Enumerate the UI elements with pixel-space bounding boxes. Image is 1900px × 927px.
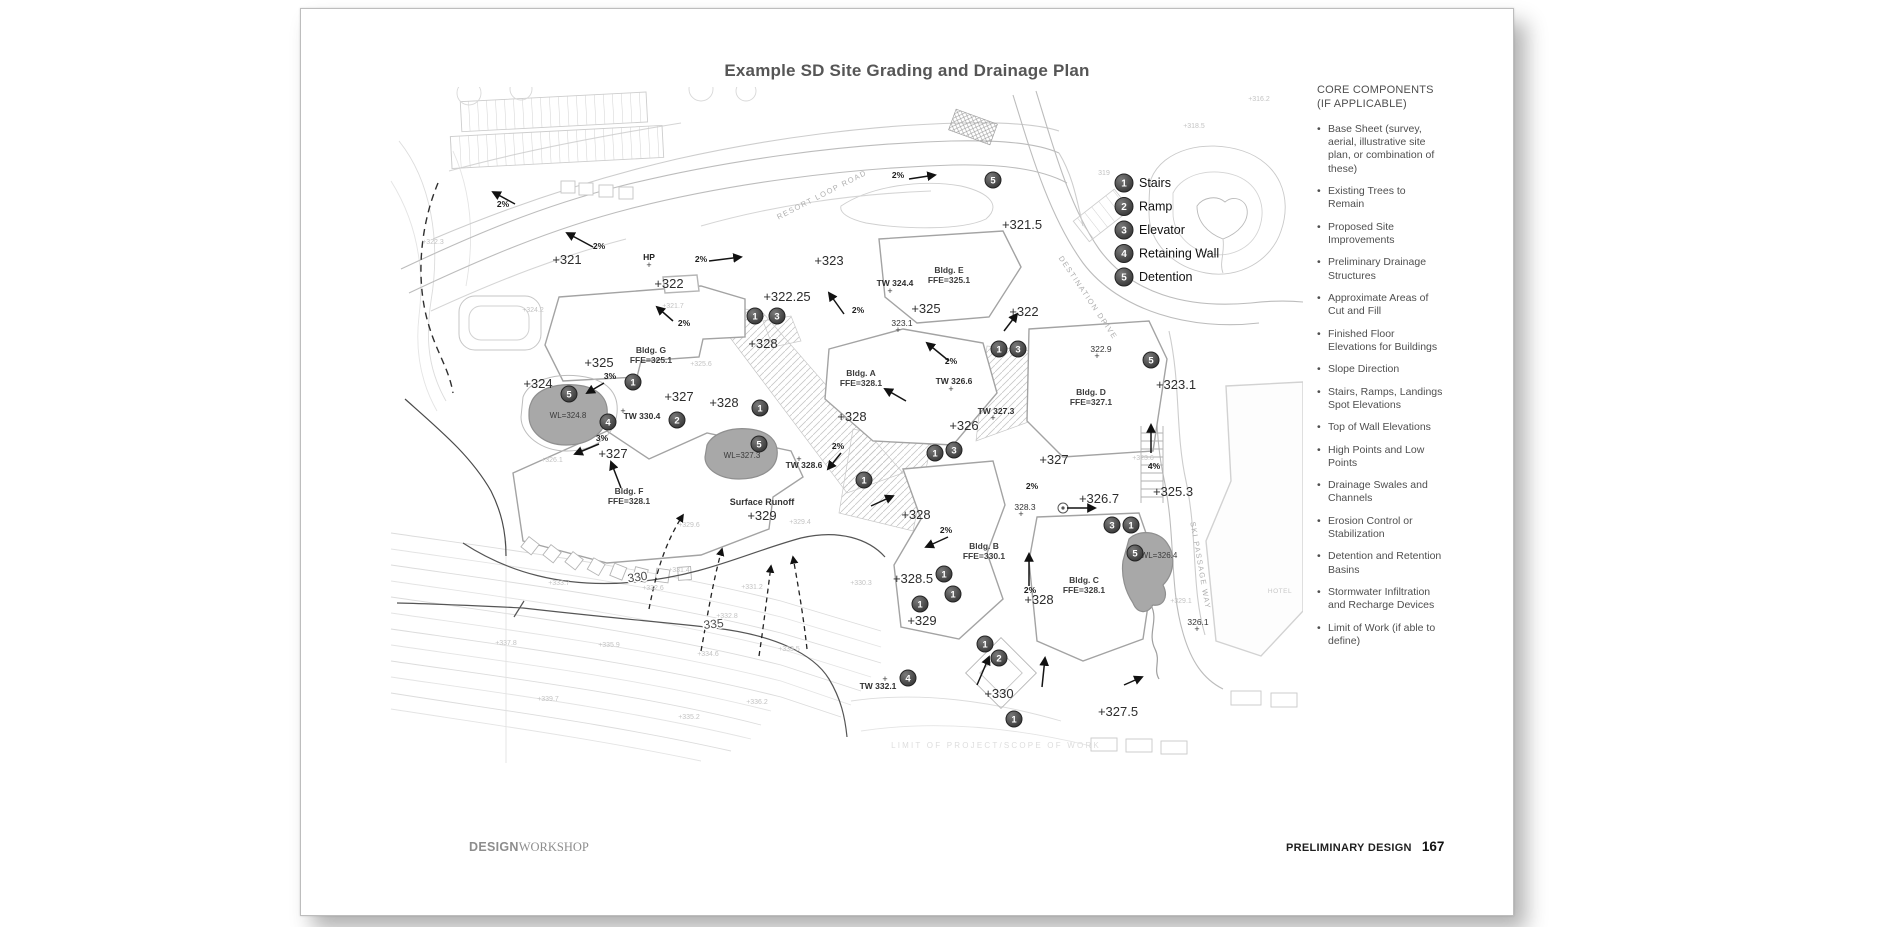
plan-label: +323 [814, 253, 843, 268]
plan-label: +329.6 [678, 522, 700, 529]
plan-label: +328 [748, 336, 777, 351]
site-plan-drawing: +321+322+322.25+323+321.5+322+325+325+32… [389, 87, 1303, 769]
svg-text:1: 1 [861, 475, 867, 486]
plan-label: +331.4 [668, 567, 690, 574]
plan-label: FFE=328.1 [608, 496, 651, 506]
plan-label: FFE=330.1 [963, 551, 1006, 561]
plan-label: +326 [949, 418, 978, 433]
plan-label: + [1094, 351, 1099, 361]
plan-label: + [895, 325, 900, 335]
plan-label: +329 [907, 613, 936, 628]
building-hotel [1206, 382, 1303, 656]
plan-label: +335.2 [678, 714, 700, 721]
core-components-heading: CORE COMPONENTS (IF APPLICABLE) [1317, 83, 1443, 112]
brand-logo-workshop: WORKSHOP [519, 840, 589, 854]
core-component-item: Base Sheet (survey, aerial, illustrative… [1317, 123, 1443, 176]
plan-legend: 1Stairs2Ramp3Elevator4Retaining Wall5Det… [1115, 174, 1219, 286]
slope-arrow [1124, 677, 1142, 685]
plan-label: 2% [892, 170, 905, 180]
plan-label: Bldg. G [636, 345, 667, 355]
plan-label: +330.3 [850, 580, 872, 587]
plan-label: +326.7 [1079, 491, 1119, 506]
plan-label: RESORT LOOP ROAD [775, 168, 868, 221]
core-component-item: Stairs, Ramps, Landings Spot Elevations [1317, 386, 1443, 413]
plan-label: TW 326.6 [936, 376, 973, 386]
core-component-item: Drainage Swales and Channels [1317, 479, 1443, 506]
plan-label: +327.5 [1098, 704, 1138, 719]
svg-text:5: 5 [566, 389, 572, 400]
svg-text:1: 1 [757, 403, 763, 414]
core-components-sidebar: CORE COMPONENTS (IF APPLICABLE) Base She… [1317, 83, 1443, 657]
plan-label: TW 327.3 [978, 406, 1015, 416]
plan-label: +326.1 [541, 457, 563, 464]
page-number: 167 [1422, 839, 1445, 854]
section-label: PRELIMINARY DESIGN [1286, 842, 1412, 854]
core-component-item: Detention and Retention Basins [1317, 550, 1443, 577]
keynote-marker-5: 5 [561, 386, 577, 402]
keynote-marker-1: 1 [912, 596, 928, 612]
plan-label: +321 [552, 252, 581, 267]
plan-label: 2% [940, 525, 953, 535]
keynote-marker-1: 1 [927, 445, 943, 461]
plan-label: WL=327.3 [724, 451, 761, 460]
legend-item-retaining-wall: 4Retaining Wall [1115, 245, 1219, 263]
plan-label: +329.4 [789, 519, 811, 526]
plan-label: 2% [945, 356, 958, 366]
wall-line [405, 399, 506, 556]
plan-label: TW 332.1 [860, 681, 897, 691]
keynote-marker-2: 2 [991, 650, 1007, 666]
plan-label: Bldg. F [615, 486, 644, 496]
plan-label: TW 324.4 [877, 278, 914, 288]
keynote-marker-1: 1 [1006, 711, 1022, 727]
plan-label: +331.2 [741, 584, 763, 591]
plan-label: 3% [604, 371, 617, 381]
slope-arrow [829, 293, 844, 314]
plan-label: +322 [654, 276, 683, 291]
svg-text:4: 4 [1121, 249, 1127, 260]
svg-text:1: 1 [1121, 179, 1127, 190]
plan-label: +327 [1039, 452, 1068, 467]
plan-label: 2% [852, 305, 865, 315]
legend-label: Retaining Wall [1139, 247, 1219, 261]
svg-text:5: 5 [1148, 355, 1154, 366]
plan-label: FFE=325.1 [928, 275, 971, 285]
legend-label: Stairs [1139, 176, 1171, 190]
plan-label: 2% [832, 441, 845, 451]
legend-item-elevator: 3Elevator [1115, 221, 1185, 239]
legend-label: Detention [1139, 270, 1193, 284]
core-components-heading-line1: CORE COMPONENTS [1317, 83, 1443, 97]
keynote-marker-3: 3 [1104, 517, 1120, 533]
keynote-marker-3: 3 [946, 442, 962, 458]
plan-label: HOTEL [1268, 588, 1292, 595]
plan-label: Bldg. A [846, 368, 875, 378]
core-components-list: Base Sheet (survey, aerial, illustrative… [1317, 123, 1443, 649]
plan-label: + [1018, 509, 1023, 519]
keynote-marker-4: 4 [600, 414, 616, 430]
building-g [545, 286, 745, 381]
plan-label: +322 [1009, 304, 1038, 319]
legend-item-ramp: 2Ramp [1115, 198, 1172, 216]
svg-text:1: 1 [932, 448, 938, 459]
svg-text:1: 1 [1011, 714, 1017, 725]
keynote-marker-4: 4 [900, 670, 916, 686]
plan-label: Surface Runoff [730, 497, 796, 507]
plan-label: +322.3 [422, 239, 444, 246]
svg-text:1: 1 [630, 377, 636, 388]
plan-label: +335.9 [598, 642, 620, 649]
core-component-item: Finished Floor Elevations for Buildings [1317, 328, 1443, 355]
keynote-marker-1: 1 [936, 566, 952, 582]
svg-text:4: 4 [905, 673, 911, 684]
plan-label: 2% [1026, 481, 1039, 491]
plan-label: +318.5 [1183, 123, 1205, 130]
svg-text:5: 5 [756, 439, 762, 450]
core-components-heading-line2: (IF APPLICABLE) [1317, 97, 1443, 111]
svg-text:1: 1 [752, 311, 758, 322]
book-page: Example SD Site Grading and Drainage Pla… [300, 8, 1514, 916]
svg-text:1: 1 [996, 344, 1002, 355]
runoff-arrow [793, 557, 807, 649]
core-component-item: Existing Trees to Remain [1317, 185, 1443, 212]
plan-label: 2% [678, 318, 691, 328]
keynote-marker-1: 1 [752, 400, 768, 416]
plan-label: +332.6 [642, 585, 664, 592]
core-component-item: Slope Direction [1317, 363, 1443, 376]
keynote-marker-5: 5 [1127, 545, 1143, 561]
plan-label: +321.7 [662, 303, 684, 310]
core-component-item: Erosion Control or Stabilization [1317, 515, 1443, 542]
plan-label: FFE=327.1 [1070, 397, 1113, 407]
core-component-item: High Points and Low Points [1317, 444, 1443, 471]
tree-crosshatch [949, 109, 998, 145]
site-plan: +321+322+322.25+323+321.5+322+325+325+32… [389, 87, 1303, 769]
plan-label: +324 [523, 376, 552, 391]
plan-label: Bldg. B [969, 541, 999, 551]
svg-text:3: 3 [774, 311, 779, 322]
plan-label: +329 [747, 508, 776, 523]
plan-label: WL=324.8 [550, 411, 587, 420]
plan-label: 319 [1098, 170, 1110, 177]
keynote-marker-3: 3 [1010, 341, 1026, 357]
brand-logo-design: DESIGN [469, 840, 519, 854]
svg-text:1: 1 [941, 569, 947, 580]
plan-label: +329.1 [1170, 598, 1192, 605]
plan-label: Bldg. E [934, 265, 964, 275]
plan-label: +327 [598, 446, 627, 461]
core-component-item: Limit of Work (if able to define) [1317, 622, 1443, 649]
plan-label: 330 [627, 569, 649, 586]
slope-arrow [1042, 658, 1045, 687]
keynote-marker-5: 5 [751, 436, 767, 452]
svg-text:1: 1 [982, 639, 988, 650]
plan-label: LIMIT OF PROJECT/SCOPE OF WORK [891, 741, 1101, 750]
brand-logo: DESIGNWORKSHOP [469, 838, 589, 856]
core-component-item: Approximate Areas of Cut and Fill [1317, 292, 1443, 319]
core-component-item: Proposed Site Improvements [1317, 221, 1443, 248]
keynote-marker-3: 3 [769, 308, 785, 324]
plan-label: +322.25 [763, 289, 810, 304]
plan-label: TW 328.6 [786, 460, 823, 470]
plan-label: +325.6 [690, 361, 712, 368]
core-component-item: Top of Wall Elevations [1317, 421, 1443, 434]
svg-text:5: 5 [1132, 548, 1138, 559]
svg-text:1: 1 [950, 589, 956, 600]
svg-text:3: 3 [1015, 344, 1020, 355]
svg-text:5: 5 [990, 175, 996, 186]
plan-label: 2% [593, 241, 606, 251]
svg-text:3: 3 [1109, 520, 1114, 531]
plan-label: +328.5 [893, 571, 933, 586]
plan-label: +336.2 [746, 699, 768, 706]
plan-label: Bldg. D [1076, 387, 1106, 397]
keynote-marker-1: 1 [856, 472, 872, 488]
plan-label: +325 [911, 301, 940, 316]
plan-label: WL=326.4 [1141, 551, 1178, 560]
legend-label: Elevator [1139, 223, 1185, 237]
plan-label: TW 330.4 [624, 411, 661, 421]
keynote-marker-1: 1 [747, 308, 763, 324]
legend-item-stairs: 1Stairs [1115, 174, 1171, 192]
keynote-marker-2: 2 [669, 412, 685, 428]
legend-label: Ramp [1139, 200, 1172, 214]
plan-label: +328 [837, 409, 866, 424]
page-title: Example SD Site Grading and Drainage Pla… [301, 61, 1513, 81]
svg-text:5: 5 [1121, 273, 1127, 284]
plan-label: +333.5 [778, 646, 800, 653]
plan-label: +321.5 [1002, 217, 1042, 232]
keynote-marker-5: 5 [985, 172, 1001, 188]
keynote-marker-1: 1 [1123, 517, 1139, 533]
plan-label: + [1194, 624, 1199, 634]
slope-arrow [567, 233, 593, 247]
plan-label: HP [643, 252, 655, 262]
plan-label: +330 [984, 686, 1013, 701]
svg-text:2: 2 [996, 653, 1001, 664]
keynote-marker-1: 1 [991, 341, 1007, 357]
slope-arrow [909, 175, 935, 179]
plan-label: 3% [596, 433, 609, 443]
plan-label: FFE=328.1 [840, 378, 883, 388]
limit-of-work-dashed [421, 183, 453, 393]
plan-label: +333.7 [548, 580, 570, 587]
keynote-marker-1: 1 [945, 586, 961, 602]
legend-item-detention: 5Detention [1115, 268, 1193, 286]
plan-label: 4% [1148, 461, 1161, 471]
svg-text:3: 3 [951, 445, 956, 456]
keynote-marker-5: 5 [1143, 352, 1159, 368]
plan-label: +328 [709, 395, 738, 410]
plan-label: +334.6 [697, 651, 719, 658]
plan-label: +323.1 [1156, 377, 1196, 392]
keynote-marker-1: 1 [977, 636, 993, 652]
plan-label: Bldg. C [1069, 575, 1099, 585]
plan-label: +323.6 [1132, 455, 1154, 462]
plan-label: FFE=328.1 [1063, 585, 1106, 595]
plan-label: +339.7 [537, 696, 559, 703]
svg-text:1: 1 [917, 599, 923, 610]
plan-label: +316.2 [1248, 96, 1270, 103]
svg-text:4: 4 [605, 417, 611, 428]
slope-arrow [709, 257, 741, 261]
service-structures [1091, 691, 1297, 754]
plan-label: +332.8 [716, 613, 738, 620]
svg-text:3: 3 [1121, 226, 1127, 237]
keynote-marker-1: 1 [625, 374, 641, 390]
page-footer: PRELIMINARY DESIGN167 [1286, 838, 1444, 856]
plan-label: FFE=325.1 [630, 355, 673, 365]
plan-label: 2% [497, 199, 510, 209]
plan-label: +325 [584, 355, 613, 370]
plan-label: 2% [1024, 585, 1037, 595]
plan-label: +327 [664, 389, 693, 404]
plan-label: +328 [901, 507, 930, 522]
core-component-item: Preliminary Drainage Structures [1317, 256, 1443, 283]
runoff-arrow [759, 566, 771, 656]
plan-label: +324.2 [522, 307, 544, 314]
plan-label: +337.8 [495, 640, 517, 647]
svg-text:1: 1 [1128, 520, 1134, 531]
plan-label: +325.3 [1153, 484, 1193, 499]
svg-text:2: 2 [674, 415, 679, 426]
svg-text:2: 2 [1121, 202, 1127, 213]
core-component-item: Stormwater Infiltration and Recharge Dev… [1317, 586, 1443, 613]
creek-channel [1151, 605, 1159, 679]
plan-label: 2% [695, 254, 708, 264]
